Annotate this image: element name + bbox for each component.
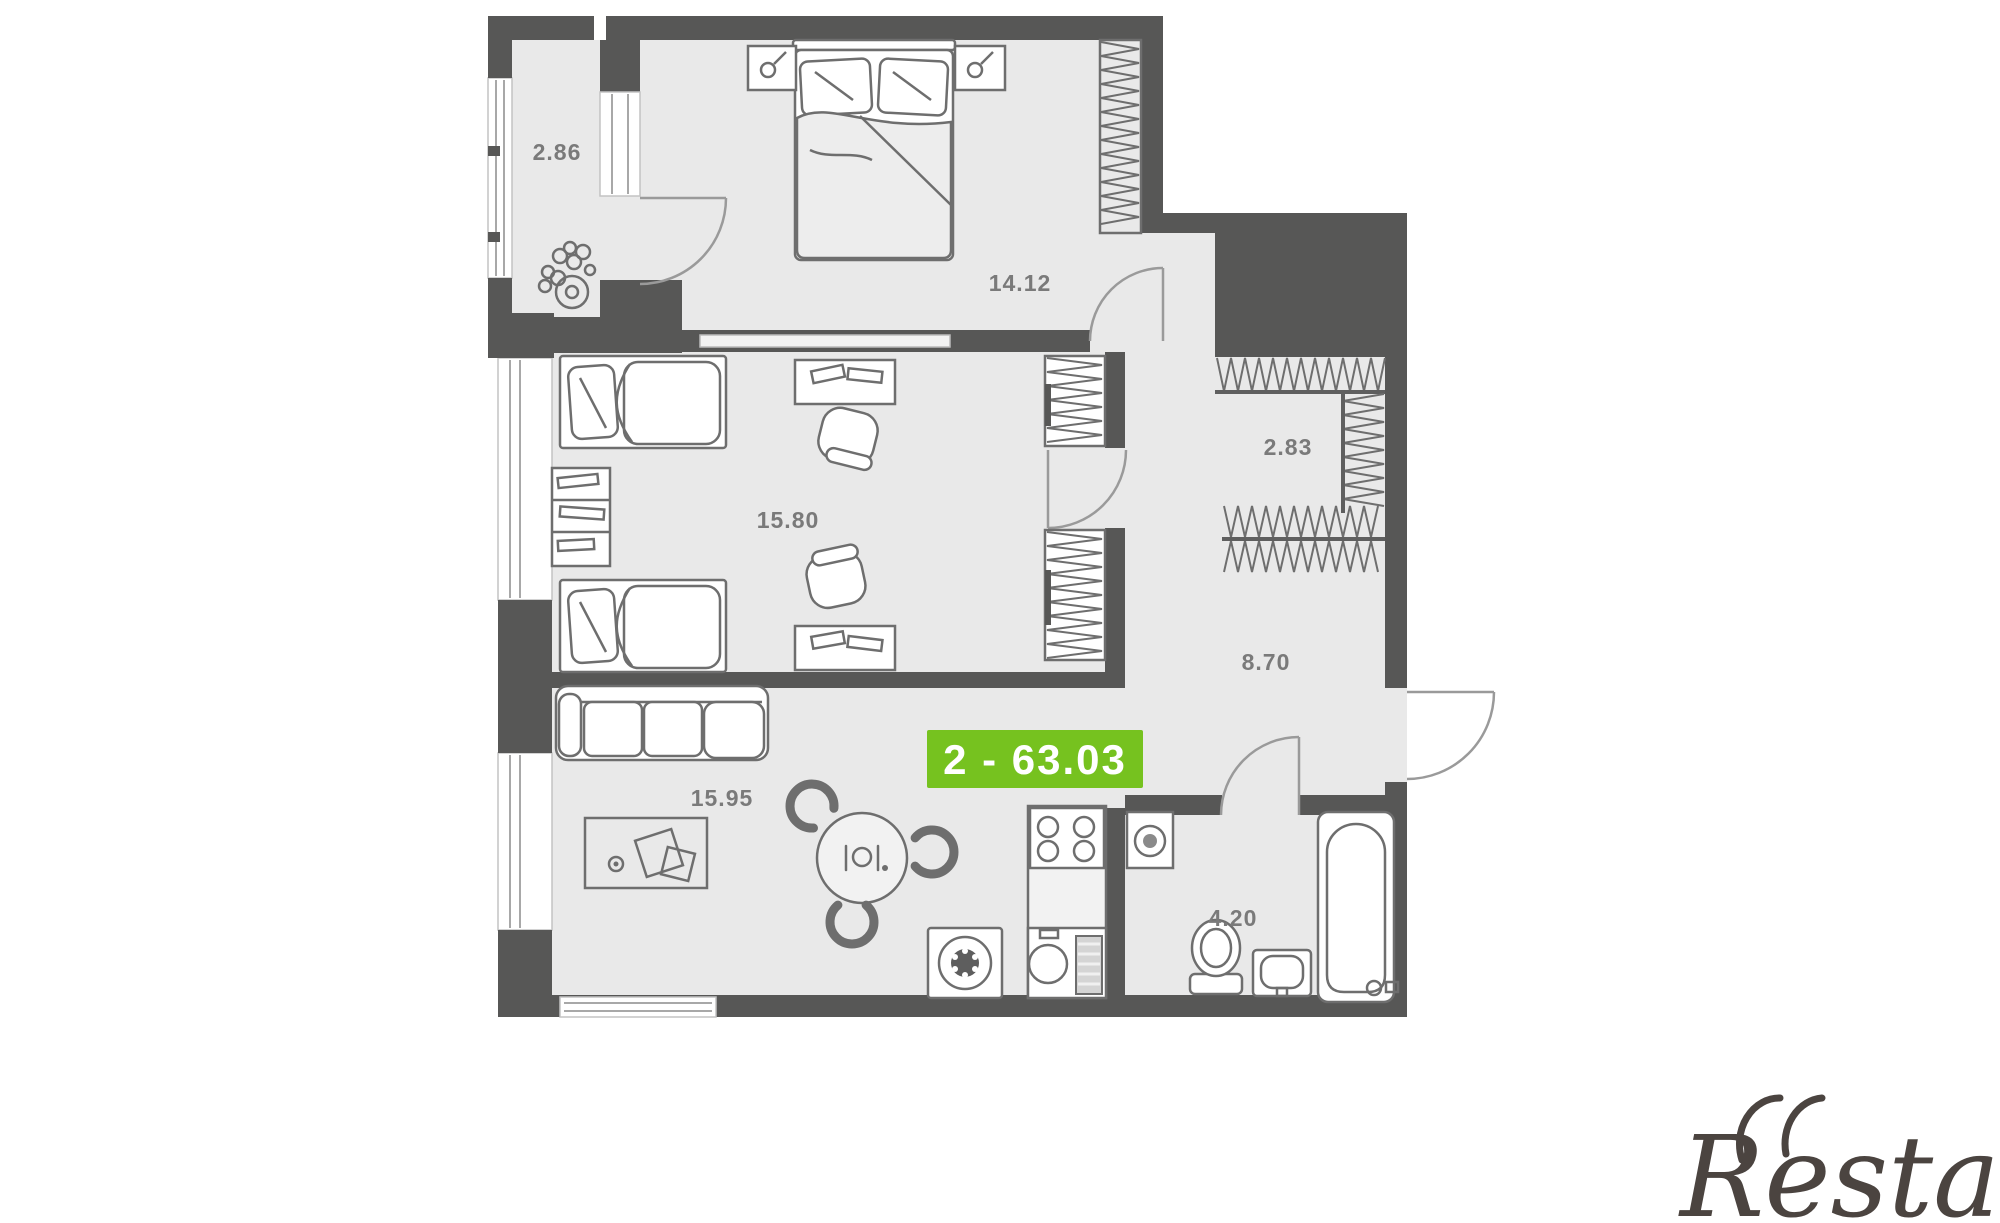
desk-2-icon — [795, 626, 895, 670]
stove-icon — [1030, 808, 1104, 868]
washing-machine-icon — [928, 928, 1002, 998]
window-living-left — [498, 753, 552, 930]
bookshelf-icon — [552, 468, 610, 566]
toilet-icon — [1190, 920, 1242, 994]
room-label-children-room: 15.80 — [757, 507, 820, 533]
nightstand-left-icon — [748, 46, 796, 90]
single-bed-2-icon — [560, 580, 726, 672]
children-wardrobe-2-icon — [1045, 530, 1105, 660]
children-wardrobe-1-icon — [1045, 356, 1105, 446]
desk-1-icon — [795, 360, 895, 404]
bath-washer-icon — [1127, 812, 1173, 868]
room-label-bedroom: 14.12 — [989, 270, 1052, 296]
area-badge: 2 - 63.03 — [927, 730, 1143, 788]
bath-sink-icon — [1253, 950, 1311, 996]
sofa-icon — [556, 686, 768, 760]
window-living-bottom — [560, 997, 716, 1017]
bathtub-icon — [1318, 812, 1398, 1002]
floor-plan-page: 2.86 14.12 15.80 2.83 8.70 15.95 4.20 2 … — [0, 0, 2000, 1223]
room-label-hallway: 8.70 — [1242, 649, 1291, 675]
room-label-bathroom: 4.20 — [1209, 905, 1258, 931]
single-bed-1-icon — [560, 356, 726, 448]
kitchen-sink-icon — [1028, 928, 1106, 998]
area-badge-text: 2 - 63.03 — [943, 736, 1127, 783]
nightstand-right-icon — [955, 46, 1005, 90]
room-label-wardrobe-hall: 2.83 — [1264, 434, 1313, 460]
double-bed-icon — [793, 40, 955, 260]
watermark: Restate — [1680, 1122, 2000, 1223]
window-children-room — [498, 358, 552, 600]
door-entrance — [1407, 692, 1494, 779]
floor-plan: 2.86 14.12 15.80 2.83 8.70 15.95 4.20 2 … — [0, 0, 2000, 1223]
room-label-balcony: 2.86 — [533, 139, 582, 165]
room-label-living-kitchen: 15.95 — [691, 785, 754, 811]
window-balcony-left — [488, 78, 512, 278]
dining-table-icon — [817, 813, 907, 903]
